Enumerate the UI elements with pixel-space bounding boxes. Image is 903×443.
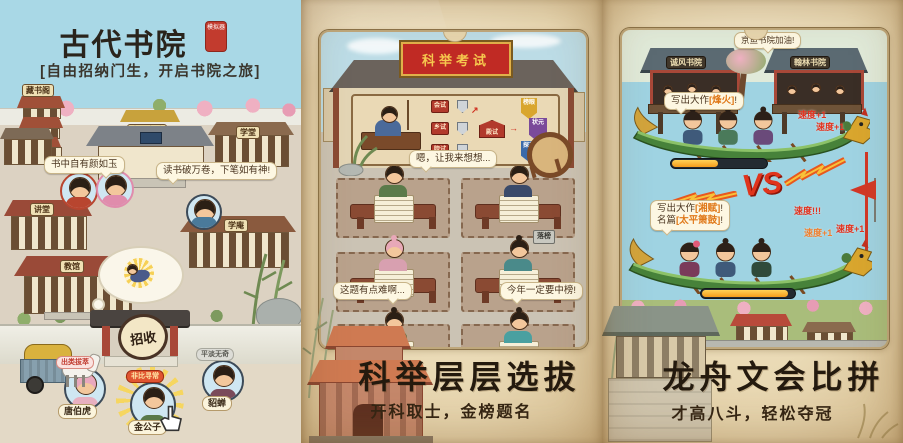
- finish-flag-icon: [850, 180, 876, 200]
- exam-desk: [336, 178, 450, 238]
- fail-tag: 落榜: [533, 230, 555, 244]
- tree-foliage: [726, 48, 766, 74]
- boat2-speed-3: 速度+1: [836, 222, 864, 235]
- vs-text: VS: [740, 166, 783, 204]
- student-boy-avatar: [60, 172, 98, 210]
- race-subtitle: 才高八斗，轻松夺冠: [602, 400, 903, 424]
- boy-head: [69, 177, 91, 199]
- candidate-tag-2: 非比寻常: [126, 370, 164, 383]
- plant-and-rock: [337, 132, 383, 176]
- exam-subtitle: 开科取士，金榜题名: [301, 398, 602, 422]
- boat1-progress-fill: [672, 160, 718, 167]
- examiner-head: [381, 106, 398, 123]
- panel-academy-home: 古代书院 模拟器 [自由招纳门生，开启书院之旅] 藏书阁 古代书院 学堂: [0, 0, 301, 443]
- race-headline: 龙舟文会比拼: [646, 352, 901, 398]
- cloud: [347, 38, 407, 54]
- thought-cloud: [98, 246, 184, 304]
- dragon-boat-2: [624, 236, 872, 294]
- exam-banner: 科举考试: [401, 42, 511, 76]
- building-school-label: 学堂: [236, 126, 260, 139]
- game-title: 古代书院: [16, 20, 231, 64]
- panel-imperial-exam: 科举考试 会试 乡试 院试 殿试 ↗ → 榜眼 状元: [301, 0, 602, 443]
- race-scene-card: 诚风书院 翰林书院 京鱼书院加油!: [620, 28, 889, 349]
- examinee-girl: [376, 239, 410, 271]
- building-study-hut-label: 学庵: [224, 219, 248, 232]
- speech-bubble-study: 读书破万卷，下笔如有神!: [156, 162, 277, 180]
- screenshot-triptych: 古代书院 模拟器 [自由招纳门生，开启书院之旅] 藏书阁 古代书院 学堂: [0, 0, 903, 443]
- exam-desk: [461, 178, 575, 238]
- boat1-bubble: 写出大作[烽火]!: [664, 92, 744, 110]
- candidate-name-1: 唐伯虎: [58, 404, 97, 419]
- candidate-tag-3: 平淡无奇: [196, 348, 234, 361]
- study-girl-avatar: [186, 194, 222, 230]
- cheer-bubble: 京鱼书院加油!: [734, 32, 801, 49]
- boat2-bubble: 写出大作[湘赋]! 名篇[太平箫鼓]!: [650, 200, 730, 231]
- hand-cursor-icon: [156, 404, 186, 434]
- candidate-tag-1: 出类拔萃: [56, 356, 94, 369]
- pavilion-right-label: 翰林书院: [790, 56, 830, 69]
- cart-wheel: [26, 376, 44, 394]
- horse-cart: [0, 342, 100, 398]
- boat1-speed-2: 速度+1: [816, 120, 844, 133]
- tagline: [自由招纳门生，开启书院之旅]: [0, 60, 301, 81]
- boat2-progress-fill: [702, 290, 788, 297]
- boat2-progress-bar: [700, 288, 796, 299]
- examinee-girl: [501, 311, 535, 343]
- boat2-speed-2: 速度+1: [804, 226, 832, 239]
- examinee: [501, 239, 535, 271]
- building-library-label: 藏书阁: [22, 84, 54, 97]
- speech-bubble-jade: 书中自有颜如玉: [44, 156, 125, 174]
- card-notch: [443, 31, 467, 42]
- candidate-name-3: 貂蝉: [202, 396, 232, 411]
- building-teach-hall-label: 教馆: [60, 260, 84, 273]
- shield-icon: [457, 122, 468, 135]
- diaochan-head: [213, 365, 235, 387]
- stage-xiangshi: 乡试: [431, 122, 449, 135]
- title-seal: 模拟器: [206, 22, 226, 51]
- bubble-pass: 今年一定要中榜!: [500, 282, 583, 300]
- bubble-think: 嗯，让我来想想...: [409, 150, 497, 168]
- exam-desk: [461, 324, 575, 349]
- exam-scene-card: 科举考试 会试 乡试 院试 殿试 ↗ → 榜眼 状元: [319, 30, 588, 349]
- pavilion-left-label: 诚风书院: [666, 56, 706, 69]
- boat2-speed-1: 速度!!!: [794, 204, 821, 217]
- boat1-progress-bar: [670, 158, 768, 169]
- student-girl-avatar: [96, 170, 134, 208]
- dragon-boat-1: [630, 104, 870, 162]
- exam-headline: 科举层层选拔: [341, 352, 598, 398]
- stage-dianshi: 殿试: [479, 120, 505, 138]
- girl-head: [105, 175, 127, 197]
- stage-huishi: 会试: [431, 100, 449, 113]
- panel-dragonboat-race: 诚风书院 翰林书院 京鱼书院加油!: [602, 0, 903, 443]
- bubble-hard: 这题有点难啊...: [333, 282, 412, 300]
- rank-bangyan: 榜眼: [521, 98, 537, 119]
- shield-icon: [457, 100, 468, 113]
- building-lecture-label: 讲堂: [30, 203, 54, 216]
